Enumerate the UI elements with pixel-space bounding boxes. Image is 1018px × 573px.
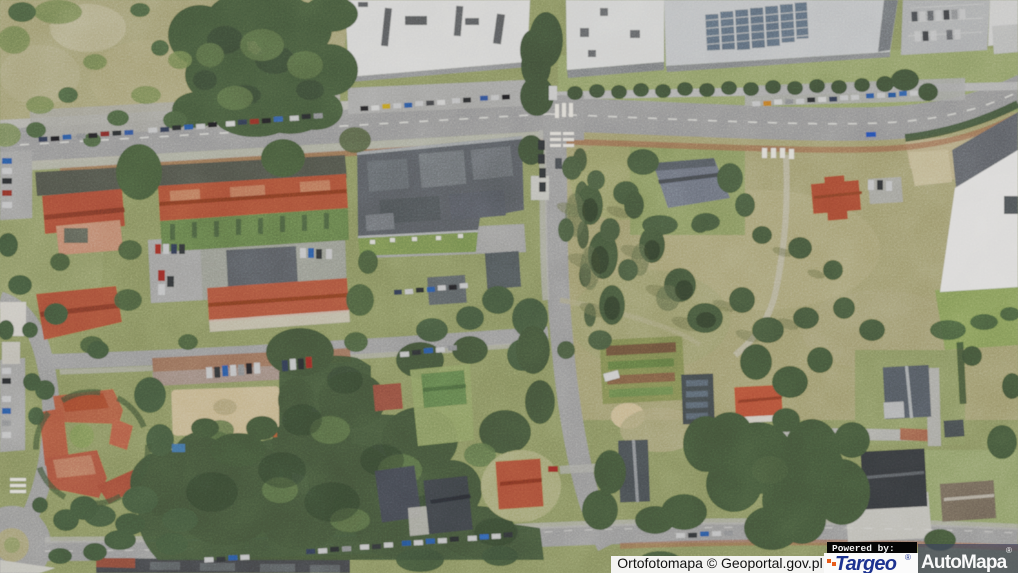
svg-text:Targeo: Targeo bbox=[835, 553, 897, 573]
svg-text:AutoMapa: AutoMapa bbox=[921, 552, 1008, 573]
svg-text:®: ® bbox=[1006, 546, 1012, 555]
svg-text:Ortofotomapa © Geoportal.gov.p: Ortofotomapa © Geoportal.gov.pl bbox=[617, 555, 822, 571]
svg-text:®: ® bbox=[905, 553, 911, 562]
